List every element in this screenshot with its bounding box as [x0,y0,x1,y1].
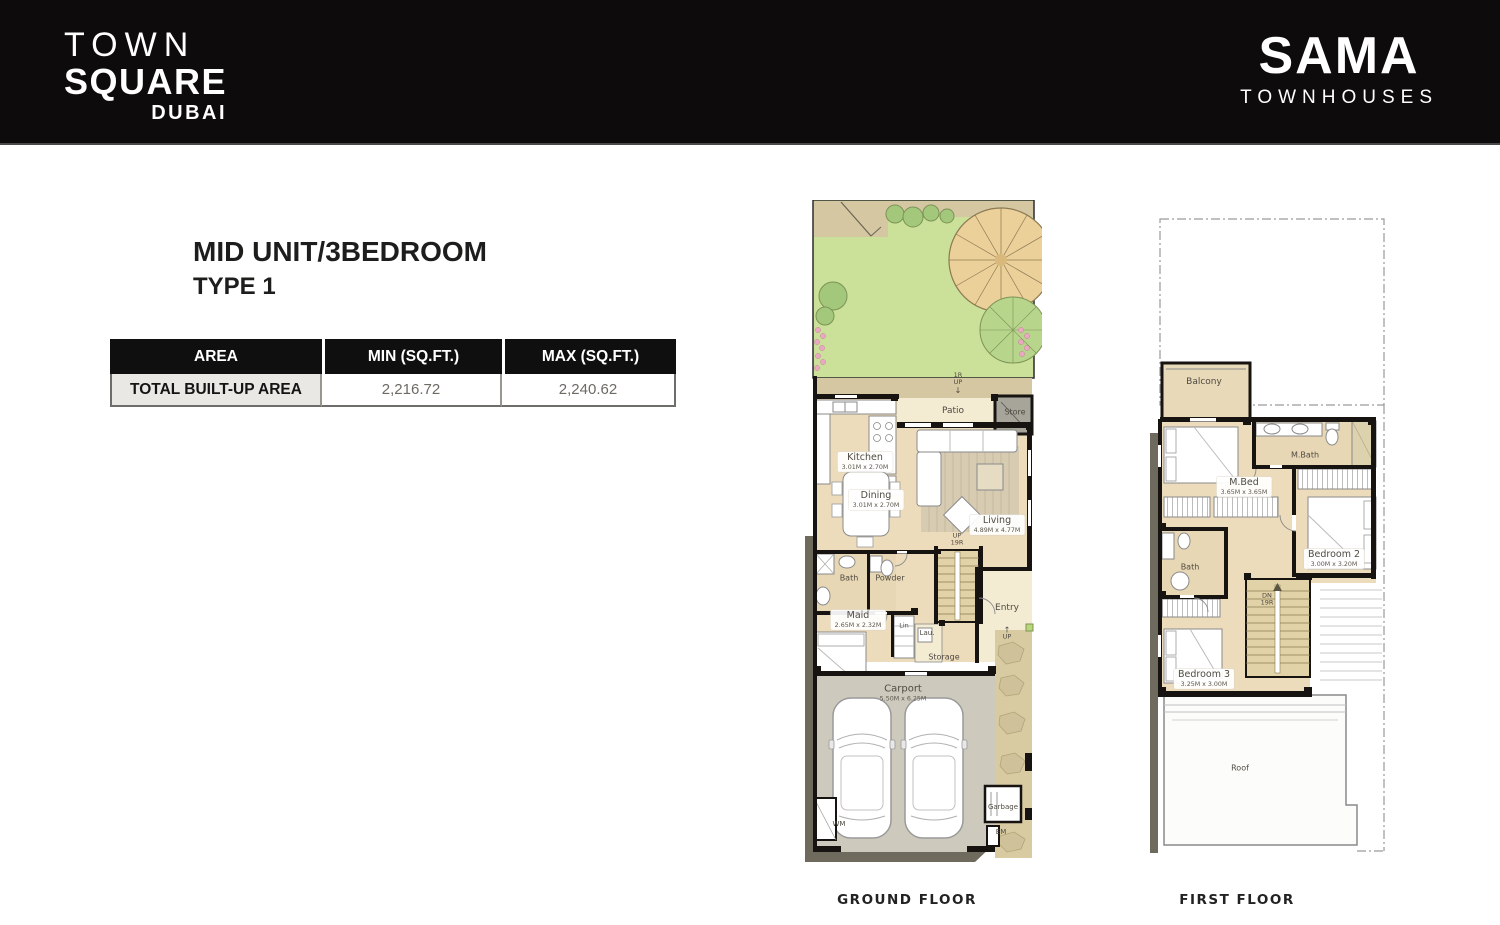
col-area: AREA [110,339,322,374]
town-square-dubai-logo: TOWN SQUARE DUBAI [64,28,227,123]
gf-kitchen-label: Kitchen 3.01M x 2.70M [838,452,893,472]
gf-garbage-label: Garbage [988,803,1018,811]
ff-bath-label: Bath [1181,562,1200,571]
gf-living-label: Living 4.89M x 4.77M [970,515,1025,535]
gf-stairs-label: UP 19R [951,533,964,548]
gf-maid-label: Maid 2.65M x 2.32M [831,610,886,630]
table-row: TOTAL BUILT-UP AREA 2,216.72 2,240.62 [110,374,676,407]
gf-bath-label: Bath [840,573,859,582]
area-table-header: AREA MIN (SQ.FT.) MAX (SQ.FT.) [110,339,676,374]
first-floor-plan: Balcony M.Bed 3.65M x 3.65M M.Bath Bath … [1150,215,1392,873]
sama-townhouses-logo: SAMA TOWNHOUSES [1240,30,1438,107]
down-arrow-icon: ↓ [954,387,963,394]
area-table: AREA MIN (SQ.FT.) MAX (SQ.FT.) TOTAL BUI… [110,339,676,407]
first-floor-drawing [1150,215,1392,873]
ground-floor-plan: 1R UP ↓ Patio Store Kitchen 3.01M x 2.70… [805,200,1042,862]
gf-dining-label: Dining 3.01M x 2.70M [849,490,904,510]
unit-title-line2: TYPE 1 [193,275,487,299]
row-min-value: 2,216.72 [322,374,502,407]
balcony-floor [1162,363,1250,425]
row-label: TOTAL BUILT-UP AREA [110,374,322,407]
gf-store-label: Store [1004,407,1025,416]
car [829,698,895,838]
mbed-furniture [1164,427,1238,483]
gf-carport-label: Carport 5.50M x 6.25M [880,684,927,703]
gf-entry-label: Entry [995,603,1019,613]
ground-floor-caption: GROUND FLOOR [837,892,977,908]
gf-patio-label: Patio [942,406,964,416]
brand-dubai: DUBAI [64,103,227,123]
mbath-fittings [1254,421,1376,467]
ff-bedroom3-label: Bedroom 3 3.25M x 3.00M [1174,669,1234,689]
gf-powder-label: Powder [875,573,904,582]
row-max-value: 2,240.62 [502,374,676,407]
roof-area [1164,695,1357,845]
stairs-down [1246,579,1310,677]
stairs-up [937,550,979,622]
col-min: MIN (SQ.FT.) [322,339,502,374]
first-floor-caption: FIRST FLOOR [1179,892,1294,908]
gf-wm-label: WM [833,820,846,828]
brochure-page: TOWN SQUARE DUBAI SAMA TOWNHOUSES MID UN… [0,0,1500,925]
unit-title: MID UNIT/3BEDROOM TYPE 1 [193,238,487,299]
garden [813,200,1042,378]
ff-stairs-label: DN 19R [1261,593,1274,608]
switch-marker [1026,624,1033,631]
col-max: MAX (SQ.FT.) [502,339,676,374]
gf-steps-label: 1R UP ↓ [954,372,963,394]
ff-mbed-label: M.Bed 3.65M x 3.65M [1217,477,1272,497]
gf-lau-label: Lau. [920,629,935,637]
ff-roof-label: Roof [1231,763,1249,772]
ff-bedroom2-label: Bedroom 2 3.00M x 3.20M [1304,549,1364,569]
gf-em-label: EM [996,828,1006,836]
gf-storage-label: Storage [928,652,959,661]
small-tree [980,297,1042,363]
project-name: SAMA [1240,30,1438,82]
brand-town: TOWN [64,28,227,62]
ff-mbath-label: M.Bath [1291,450,1319,459]
brand-square: SQUARE [64,64,227,100]
stone-path [995,630,1032,858]
project-subtitle: TOWNHOUSES [1240,88,1438,107]
gf-entry-up-label: ↑ UP [1003,627,1012,642]
ff-balcony-label: Balcony [1186,377,1222,387]
adjacent-unit-lines [1320,590,1382,680]
bath-fittings [814,552,896,614]
unit-title-line1: MID UNIT/3BEDROOM [193,238,487,266]
gf-lin-label: Lin [899,622,909,629]
header-bar: TOWN SQUARE DUBAI SAMA TOWNHOUSES [0,0,1500,145]
